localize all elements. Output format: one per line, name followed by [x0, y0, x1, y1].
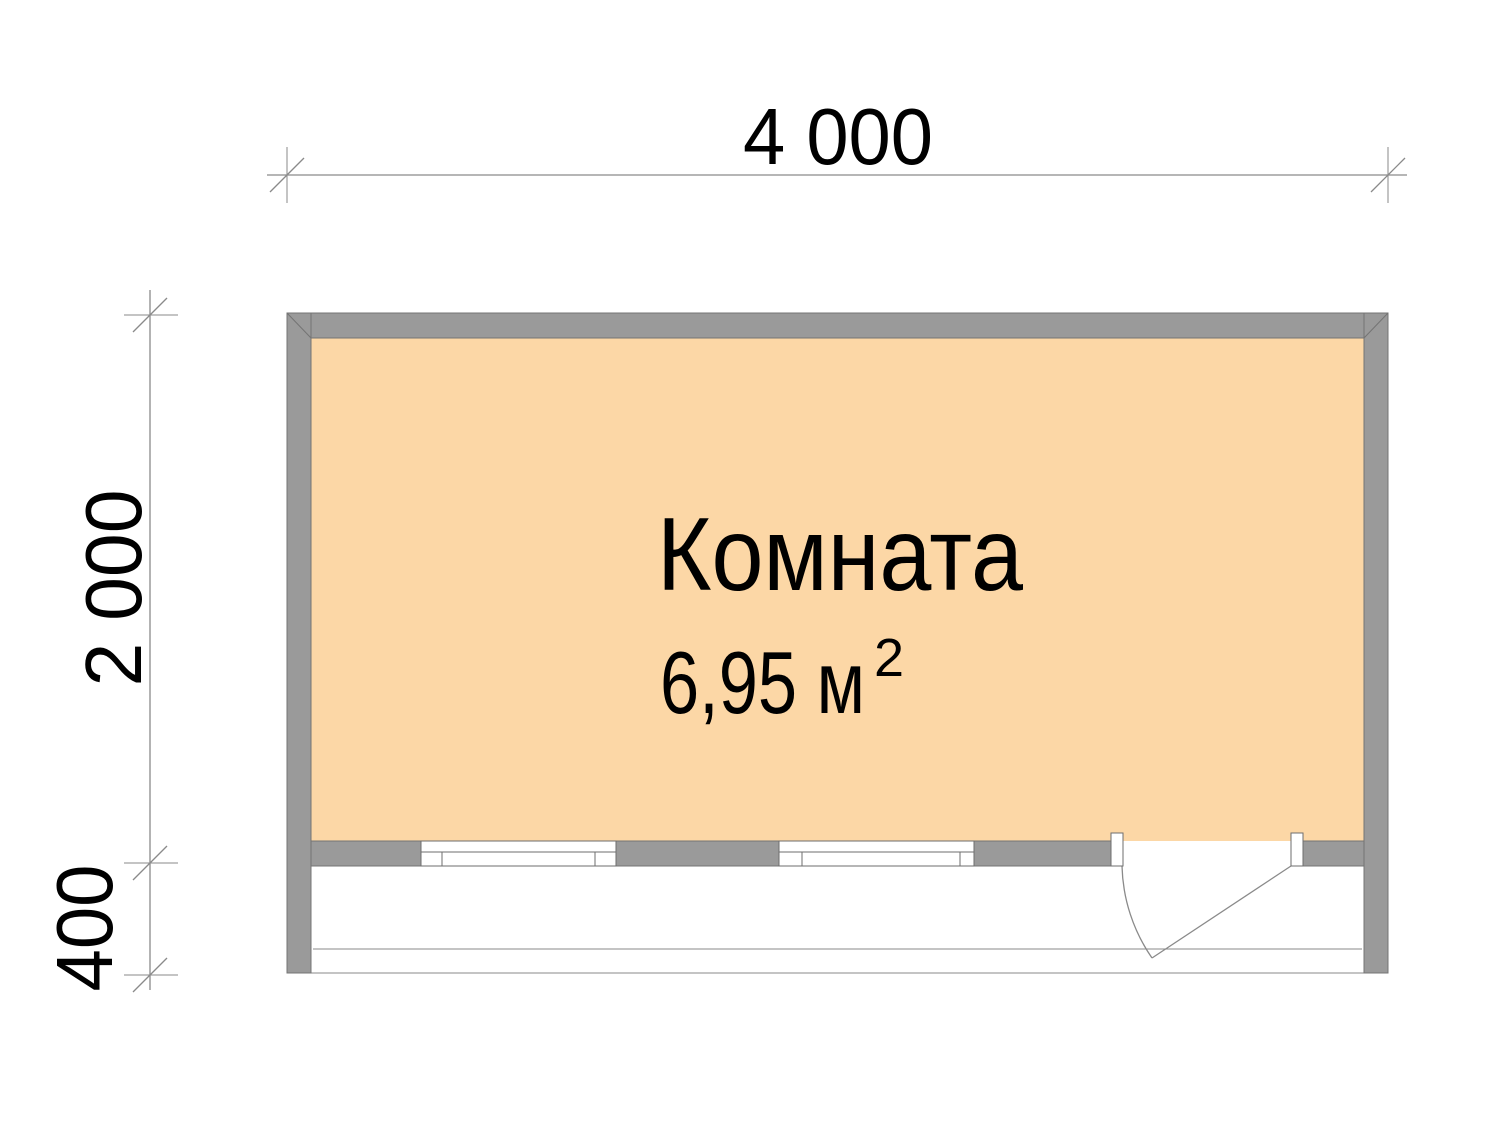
floor-plan-drawing: 4 000 2 000 400 [0, 0, 1500, 1125]
dimension-width-label: 4 000 [743, 92, 933, 181]
door-jamb-left [1111, 833, 1123, 866]
wall-bottom-segment-1 [311, 841, 421, 866]
wall-right [1364, 313, 1388, 973]
porch-floor [311, 866, 1364, 973]
dimension-width: 4 000 [267, 92, 1407, 203]
wall-top [287, 313, 1388, 338]
window-1-frame [421, 841, 616, 866]
dimension-left: 2 000 400 [40, 290, 178, 992]
window-2 [779, 841, 974, 866]
porch [287, 866, 1388, 973]
door-jamb-right [1291, 833, 1303, 866]
room-area-superscript: 2 [874, 628, 904, 688]
window-2-frame [779, 841, 974, 866]
window-1 [421, 841, 616, 866]
wall-left [287, 313, 311, 973]
wall-bottom-segment-4 [1303, 841, 1364, 866]
wall-bottom-segment-2 [616, 841, 779, 866]
floor-plan-canvas: 4 000 2 000 400 [0, 0, 1500, 1125]
dimension-height-label: 2 000 [69, 490, 158, 687]
dimension-porch-label: 400 [40, 865, 129, 992]
room-name-label: Комната [657, 497, 1023, 613]
wall-bottom-segment-3 [974, 841, 1111, 866]
room-area-label: 6,95 м [660, 633, 865, 732]
